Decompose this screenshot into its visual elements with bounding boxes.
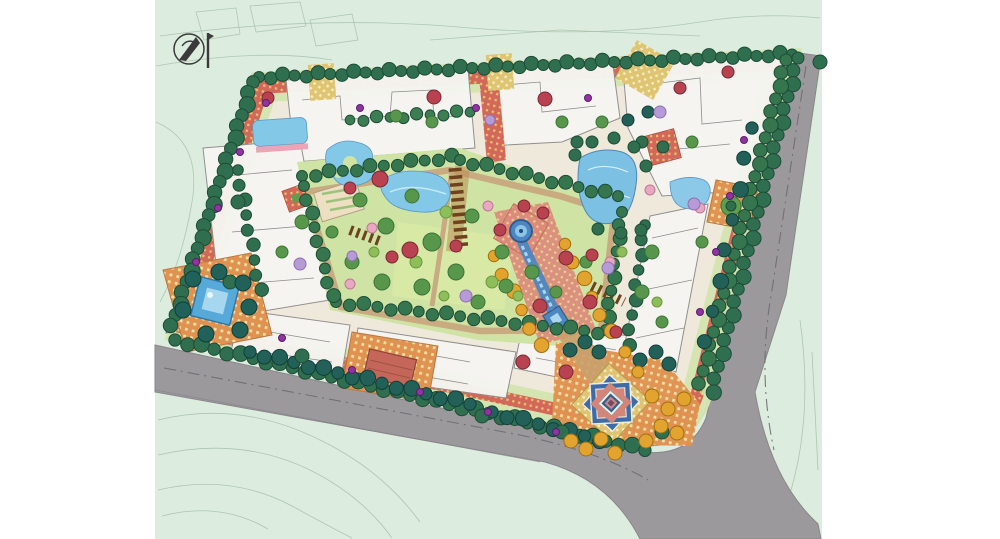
tree bbox=[746, 122, 758, 134]
tree bbox=[615, 227, 627, 239]
tree bbox=[241, 299, 257, 315]
tree bbox=[414, 279, 430, 295]
tree bbox=[516, 304, 527, 315]
tree bbox=[417, 389, 424, 396]
tree bbox=[645, 245, 659, 259]
tree bbox=[311, 66, 325, 80]
tree bbox=[347, 64, 361, 78]
tree bbox=[289, 70, 300, 81]
tree bbox=[473, 105, 480, 112]
tree bbox=[534, 338, 549, 353]
tree bbox=[343, 299, 355, 311]
tree bbox=[813, 55, 827, 69]
tree bbox=[316, 247, 330, 261]
tree bbox=[327, 289, 341, 303]
tree bbox=[310, 235, 322, 247]
tree bbox=[753, 157, 768, 172]
tree bbox=[701, 351, 716, 366]
tree bbox=[613, 191, 624, 202]
tree bbox=[736, 269, 751, 284]
tree bbox=[499, 279, 513, 293]
tree bbox=[546, 176, 558, 188]
tree bbox=[310, 170, 322, 182]
tree bbox=[773, 79, 788, 94]
tree bbox=[722, 66, 734, 78]
tree bbox=[596, 116, 608, 128]
tree bbox=[571, 136, 583, 148]
tree bbox=[559, 238, 570, 249]
tree bbox=[418, 61, 432, 75]
tree bbox=[692, 377, 706, 391]
tree bbox=[467, 62, 478, 73]
tree bbox=[257, 350, 271, 364]
tree bbox=[426, 116, 438, 128]
tree bbox=[537, 320, 548, 331]
tree bbox=[593, 309, 606, 322]
tree bbox=[515, 410, 531, 426]
tree bbox=[494, 224, 506, 236]
pool-sparkle bbox=[207, 292, 213, 298]
tree bbox=[780, 54, 792, 66]
tree bbox=[716, 346, 731, 361]
tree bbox=[232, 322, 248, 338]
tree bbox=[439, 291, 449, 301]
tree bbox=[357, 296, 371, 310]
tree bbox=[583, 295, 597, 309]
tree bbox=[486, 276, 498, 288]
tree bbox=[713, 249, 720, 256]
tree bbox=[465, 209, 479, 223]
tree bbox=[642, 106, 654, 118]
tree bbox=[480, 157, 494, 171]
tree bbox=[563, 343, 577, 357]
tree bbox=[299, 181, 310, 192]
tree bbox=[467, 158, 479, 170]
tree bbox=[598, 184, 612, 198]
tree bbox=[666, 50, 680, 64]
tree bbox=[404, 153, 418, 167]
tree bbox=[532, 418, 544, 430]
tree bbox=[391, 159, 403, 171]
tree bbox=[360, 67, 371, 78]
tree bbox=[746, 231, 761, 246]
tree bbox=[578, 335, 592, 349]
tree bbox=[559, 251, 573, 265]
tree bbox=[715, 52, 726, 63]
tree bbox=[524, 56, 538, 70]
tree bbox=[396, 65, 407, 76]
tree bbox=[622, 324, 634, 336]
tree bbox=[405, 189, 419, 203]
tree bbox=[423, 233, 441, 251]
tree bbox=[357, 105, 364, 112]
tree bbox=[326, 226, 338, 238]
tree bbox=[538, 92, 552, 106]
tree bbox=[367, 223, 377, 233]
tree bbox=[360, 370, 376, 386]
tree bbox=[633, 265, 644, 276]
tree bbox=[578, 430, 590, 442]
tree bbox=[481, 311, 495, 325]
tree bbox=[792, 52, 804, 64]
tree bbox=[644, 55, 655, 66]
tree bbox=[513, 291, 523, 301]
site-plan-canvas bbox=[0, 0, 1000, 539]
tree bbox=[702, 49, 716, 63]
tree bbox=[594, 432, 608, 446]
tree bbox=[351, 165, 363, 177]
tree bbox=[427, 90, 441, 104]
tree bbox=[556, 116, 568, 128]
tree bbox=[608, 446, 622, 460]
tree bbox=[559, 175, 573, 189]
tree bbox=[592, 345, 606, 359]
tree bbox=[727, 193, 734, 200]
tree bbox=[489, 58, 503, 72]
tree bbox=[455, 155, 466, 166]
tree bbox=[654, 106, 666, 118]
tree bbox=[538, 59, 549, 70]
tree bbox=[431, 64, 442, 75]
tree bbox=[627, 310, 638, 321]
tree bbox=[211, 264, 227, 280]
tree bbox=[453, 59, 467, 73]
tree bbox=[247, 238, 260, 251]
tree bbox=[707, 372, 721, 386]
tree bbox=[448, 264, 464, 280]
tree bbox=[686, 136, 698, 148]
tree bbox=[586, 249, 598, 261]
tree bbox=[569, 149, 581, 161]
tree bbox=[656, 316, 668, 328]
tree bbox=[485, 409, 492, 416]
tree bbox=[579, 325, 590, 336]
tree bbox=[332, 367, 344, 379]
tree bbox=[382, 63, 396, 77]
tree bbox=[233, 179, 245, 191]
tree bbox=[677, 392, 691, 406]
site-plan-image bbox=[0, 0, 1000, 539]
tree bbox=[450, 240, 462, 252]
tree bbox=[378, 160, 389, 171]
tree bbox=[385, 304, 397, 316]
tree bbox=[764, 105, 778, 119]
tree bbox=[697, 309, 704, 316]
tree bbox=[198, 326, 214, 342]
tree bbox=[345, 279, 355, 289]
tree bbox=[483, 201, 493, 211]
tree bbox=[163, 318, 177, 332]
tree bbox=[410, 108, 422, 120]
tree bbox=[742, 195, 757, 210]
tree bbox=[500, 411, 514, 425]
tree bbox=[309, 222, 320, 233]
tree bbox=[726, 214, 738, 226]
tree bbox=[509, 318, 521, 330]
tree bbox=[559, 365, 573, 379]
tree bbox=[770, 93, 782, 105]
tree bbox=[208, 343, 220, 355]
tree bbox=[363, 159, 377, 173]
tree bbox=[272, 349, 288, 365]
tree bbox=[737, 47, 751, 61]
tree bbox=[316, 360, 332, 376]
tree bbox=[249, 255, 260, 266]
tree bbox=[585, 95, 592, 102]
tree bbox=[706, 305, 718, 317]
tree bbox=[516, 355, 530, 369]
tree bbox=[485, 115, 495, 125]
tree bbox=[697, 365, 709, 377]
tree bbox=[737, 151, 751, 165]
plan-root bbox=[155, 0, 827, 539]
tree bbox=[233, 165, 244, 176]
tree bbox=[688, 198, 700, 210]
tree bbox=[358, 115, 369, 126]
tree bbox=[564, 434, 578, 448]
tree bbox=[670, 426, 684, 440]
tree bbox=[295, 215, 309, 229]
fountain-center bbox=[519, 229, 523, 233]
tree bbox=[450, 105, 462, 117]
tree bbox=[733, 182, 749, 198]
tree bbox=[577, 271, 592, 286]
tree bbox=[726, 308, 741, 323]
tree bbox=[633, 353, 647, 367]
pond-northwest bbox=[252, 117, 308, 147]
tree bbox=[564, 320, 578, 334]
tree bbox=[374, 274, 390, 290]
tree bbox=[344, 182, 356, 194]
tree bbox=[402, 242, 418, 258]
tree bbox=[181, 338, 195, 352]
tree bbox=[602, 297, 614, 309]
tree bbox=[654, 419, 668, 433]
tree bbox=[706, 385, 721, 400]
tree bbox=[619, 346, 631, 358]
tree bbox=[635, 224, 647, 236]
tree bbox=[732, 234, 747, 249]
tree bbox=[300, 194, 312, 206]
tree bbox=[753, 143, 767, 157]
tree bbox=[573, 182, 584, 193]
mandala-center-dot bbox=[609, 401, 612, 404]
tree bbox=[237, 149, 244, 156]
tree bbox=[175, 302, 191, 318]
tree bbox=[553, 429, 560, 436]
tree bbox=[751, 50, 762, 61]
tree bbox=[649, 345, 663, 359]
tree bbox=[523, 322, 536, 335]
tree bbox=[325, 68, 336, 79]
tree bbox=[622, 114, 634, 126]
tree bbox=[321, 276, 333, 288]
right-plaza-tree bbox=[726, 201, 736, 211]
tree bbox=[550, 323, 562, 335]
tree bbox=[372, 301, 383, 312]
tree bbox=[518, 200, 530, 212]
tree bbox=[560, 55, 574, 69]
tree bbox=[595, 53, 609, 67]
pond-node-tree bbox=[657, 141, 669, 153]
tree bbox=[276, 246, 288, 258]
tree bbox=[432, 154, 444, 166]
tree bbox=[460, 290, 472, 302]
tree bbox=[353, 193, 367, 207]
tree bbox=[639, 434, 653, 448]
tree bbox=[645, 185, 655, 195]
tree bbox=[255, 283, 268, 296]
tree bbox=[390, 110, 402, 122]
tree bbox=[631, 52, 645, 66]
tree bbox=[617, 207, 628, 218]
tree bbox=[244, 346, 256, 358]
tree bbox=[696, 236, 708, 248]
tree bbox=[592, 327, 604, 339]
tree bbox=[763, 118, 778, 133]
tree bbox=[471, 295, 485, 309]
tree bbox=[279, 335, 286, 342]
tree bbox=[749, 171, 761, 183]
tree bbox=[322, 164, 336, 178]
tree bbox=[506, 167, 518, 179]
tree bbox=[550, 286, 562, 298]
tree bbox=[276, 67, 290, 81]
tree bbox=[759, 132, 771, 144]
tree bbox=[741, 137, 748, 144]
tree bbox=[319, 263, 330, 274]
tree bbox=[661, 402, 675, 416]
tree bbox=[295, 349, 309, 363]
tree bbox=[433, 392, 447, 406]
tree bbox=[169, 334, 181, 346]
tree bbox=[739, 210, 751, 222]
tree bbox=[610, 326, 622, 338]
tree bbox=[413, 306, 424, 317]
tree bbox=[294, 258, 306, 270]
tree bbox=[495, 245, 509, 259]
tree bbox=[372, 171, 388, 187]
tree bbox=[369, 247, 379, 257]
tree bbox=[370, 110, 382, 122]
tree bbox=[537, 207, 549, 219]
tree bbox=[448, 391, 464, 407]
tree bbox=[602, 262, 614, 274]
tree bbox=[585, 185, 597, 197]
tree bbox=[496, 316, 507, 327]
tree bbox=[640, 160, 652, 172]
tree bbox=[241, 224, 253, 236]
tree bbox=[606, 285, 617, 296]
tree bbox=[645, 389, 659, 403]
tree bbox=[263, 100, 270, 107]
tree bbox=[592, 223, 604, 235]
tree bbox=[756, 192, 771, 207]
tree bbox=[586, 136, 598, 148]
tree bbox=[579, 442, 593, 456]
tree bbox=[468, 313, 480, 325]
tree bbox=[652, 297, 662, 307]
tree bbox=[193, 259, 200, 266]
tree bbox=[662, 357, 676, 371]
tree bbox=[426, 309, 438, 321]
tree bbox=[337, 165, 348, 176]
tree bbox=[573, 58, 584, 69]
tree bbox=[220, 347, 234, 361]
tree bbox=[625, 437, 641, 453]
tree bbox=[347, 251, 357, 261]
tree bbox=[250, 269, 262, 281]
tree bbox=[635, 285, 649, 299]
tree bbox=[502, 61, 513, 72]
tree bbox=[235, 275, 251, 291]
tree bbox=[723, 260, 737, 274]
tree bbox=[386, 251, 398, 263]
tree bbox=[389, 381, 403, 395]
tree bbox=[494, 164, 505, 175]
tree bbox=[440, 206, 452, 218]
tree bbox=[297, 171, 308, 182]
tree bbox=[398, 301, 412, 315]
tree bbox=[628, 141, 640, 153]
tree bbox=[349, 367, 356, 374]
tree bbox=[464, 398, 476, 410]
tree bbox=[376, 377, 388, 389]
tree bbox=[345, 115, 355, 125]
tree bbox=[215, 205, 222, 212]
tree bbox=[609, 56, 620, 67]
tree bbox=[632, 366, 644, 378]
tree bbox=[680, 53, 691, 64]
tree bbox=[534, 173, 545, 184]
tree bbox=[185, 271, 201, 287]
tree bbox=[525, 265, 539, 279]
tree bbox=[455, 311, 466, 322]
tree bbox=[617, 247, 627, 257]
tree bbox=[774, 66, 788, 80]
tree bbox=[533, 299, 547, 313]
tree bbox=[438, 110, 449, 121]
tree bbox=[440, 306, 454, 320]
tree bbox=[519, 166, 533, 180]
tree bbox=[419, 155, 430, 166]
tree bbox=[674, 82, 686, 94]
tree bbox=[697, 335, 711, 349]
tree bbox=[241, 210, 252, 221]
tree bbox=[713, 273, 729, 289]
tree bbox=[608, 132, 620, 144]
tree bbox=[231, 195, 245, 209]
tree bbox=[378, 218, 394, 234]
